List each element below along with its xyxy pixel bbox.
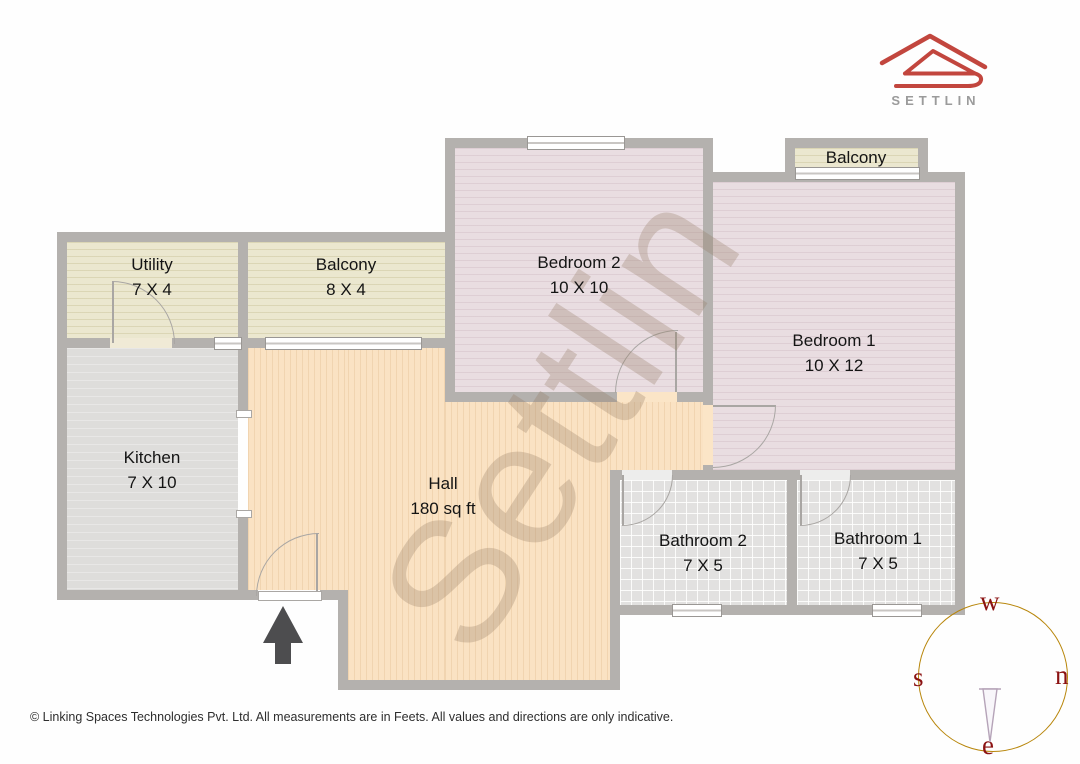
- door-leaf: [713, 405, 775, 407]
- wall: [57, 232, 450, 242]
- room-dims: 8 X 4: [276, 277, 416, 302]
- room-dims: 7 X 5: [798, 551, 958, 576]
- room-name: Bathroom 1: [798, 526, 958, 551]
- room-name: Balcony: [786, 145, 926, 170]
- wall: [610, 470, 622, 480]
- wall: [338, 680, 620, 690]
- room-name: Bathroom 2: [623, 528, 783, 553]
- window: [872, 604, 922, 617]
- wall: [238, 516, 248, 590]
- room-label-kitchen: Kitchen 7 X 10: [82, 445, 222, 495]
- room-name: Kitchen: [82, 445, 222, 470]
- room-hall-corridor: [610, 402, 703, 470]
- wall: [67, 338, 110, 348]
- compass-needle-icon: [978, 686, 1002, 748]
- window: [265, 337, 422, 350]
- door-opening: [703, 405, 713, 465]
- window: [214, 337, 242, 350]
- room-name: Hall: [363, 471, 523, 496]
- wall: [320, 590, 348, 600]
- room-label-balcony-west: Balcony 8 X 4: [276, 252, 416, 302]
- room-label-bathroom-1: Bathroom 1 7 X 5: [798, 526, 958, 576]
- room-name: Balcony: [276, 252, 416, 277]
- wall: [448, 392, 617, 402]
- wall: [57, 242, 67, 600]
- room-label-hall: Hall 180 sq ft: [363, 471, 523, 521]
- window: [672, 604, 722, 617]
- wall: [238, 232, 248, 348]
- wall: [672, 470, 800, 480]
- room-label-bedroom-2: Bedroom 2 10 X 10: [499, 250, 659, 300]
- room-dims: 7 X 5: [623, 553, 783, 578]
- door-leaf: [675, 332, 677, 392]
- compass-south-label: s: [913, 662, 924, 693]
- room-dims: 10 X 12: [754, 353, 914, 378]
- room-hall: [445, 402, 610, 680]
- window: [527, 136, 625, 150]
- door-leaf: [316, 533, 318, 595]
- room-dims: 7 X 4: [82, 277, 222, 302]
- wall: [57, 590, 248, 600]
- room-dims: 10 X 10: [499, 275, 659, 300]
- wall: [787, 480, 797, 605]
- room-name: Utility: [82, 252, 222, 277]
- room-label-balcony-north: Balcony: [786, 145, 926, 170]
- door-leaf: [622, 475, 624, 525]
- wall: [338, 600, 348, 690]
- brand-name: SETTLIN: [872, 93, 1000, 108]
- room-label-utility: Utility 7 X 4: [82, 252, 222, 302]
- door-leaf: [800, 475, 802, 525]
- room-label-bathroom-2: Bathroom 2 7 X 5: [623, 528, 783, 578]
- room-name: Bedroom 2: [499, 250, 659, 275]
- window-sill: [236, 410, 252, 418]
- wall: [610, 480, 620, 605]
- window-sill: [236, 510, 252, 518]
- wall: [238, 348, 248, 410]
- compass-west-label: w: [980, 586, 1000, 617]
- door-opening: [617, 392, 677, 402]
- compass-north-label: n: [1055, 660, 1069, 691]
- room-label-bedroom-1: Bedroom 1 10 X 12: [754, 328, 914, 378]
- wall: [610, 615, 620, 680]
- copyright-text: © Linking Spaces Technologies Pvt. Ltd. …: [30, 710, 673, 724]
- entrance-arrow-icon: [262, 606, 304, 666]
- room-dims: 7 X 10: [82, 470, 222, 495]
- settlin-logo-icon: [876, 30, 994, 92]
- floor-plan-canvas: Settlin Utility 7 X 4 Balcony 8 X 4 Kitc…: [0, 0, 1080, 764]
- wall: [850, 470, 955, 480]
- room-dims: 180 sq ft: [363, 496, 523, 521]
- entrance-threshold: [258, 591, 322, 601]
- wall: [445, 148, 455, 402]
- room-name: Bedroom 1: [754, 328, 914, 353]
- wall: [703, 148, 713, 405]
